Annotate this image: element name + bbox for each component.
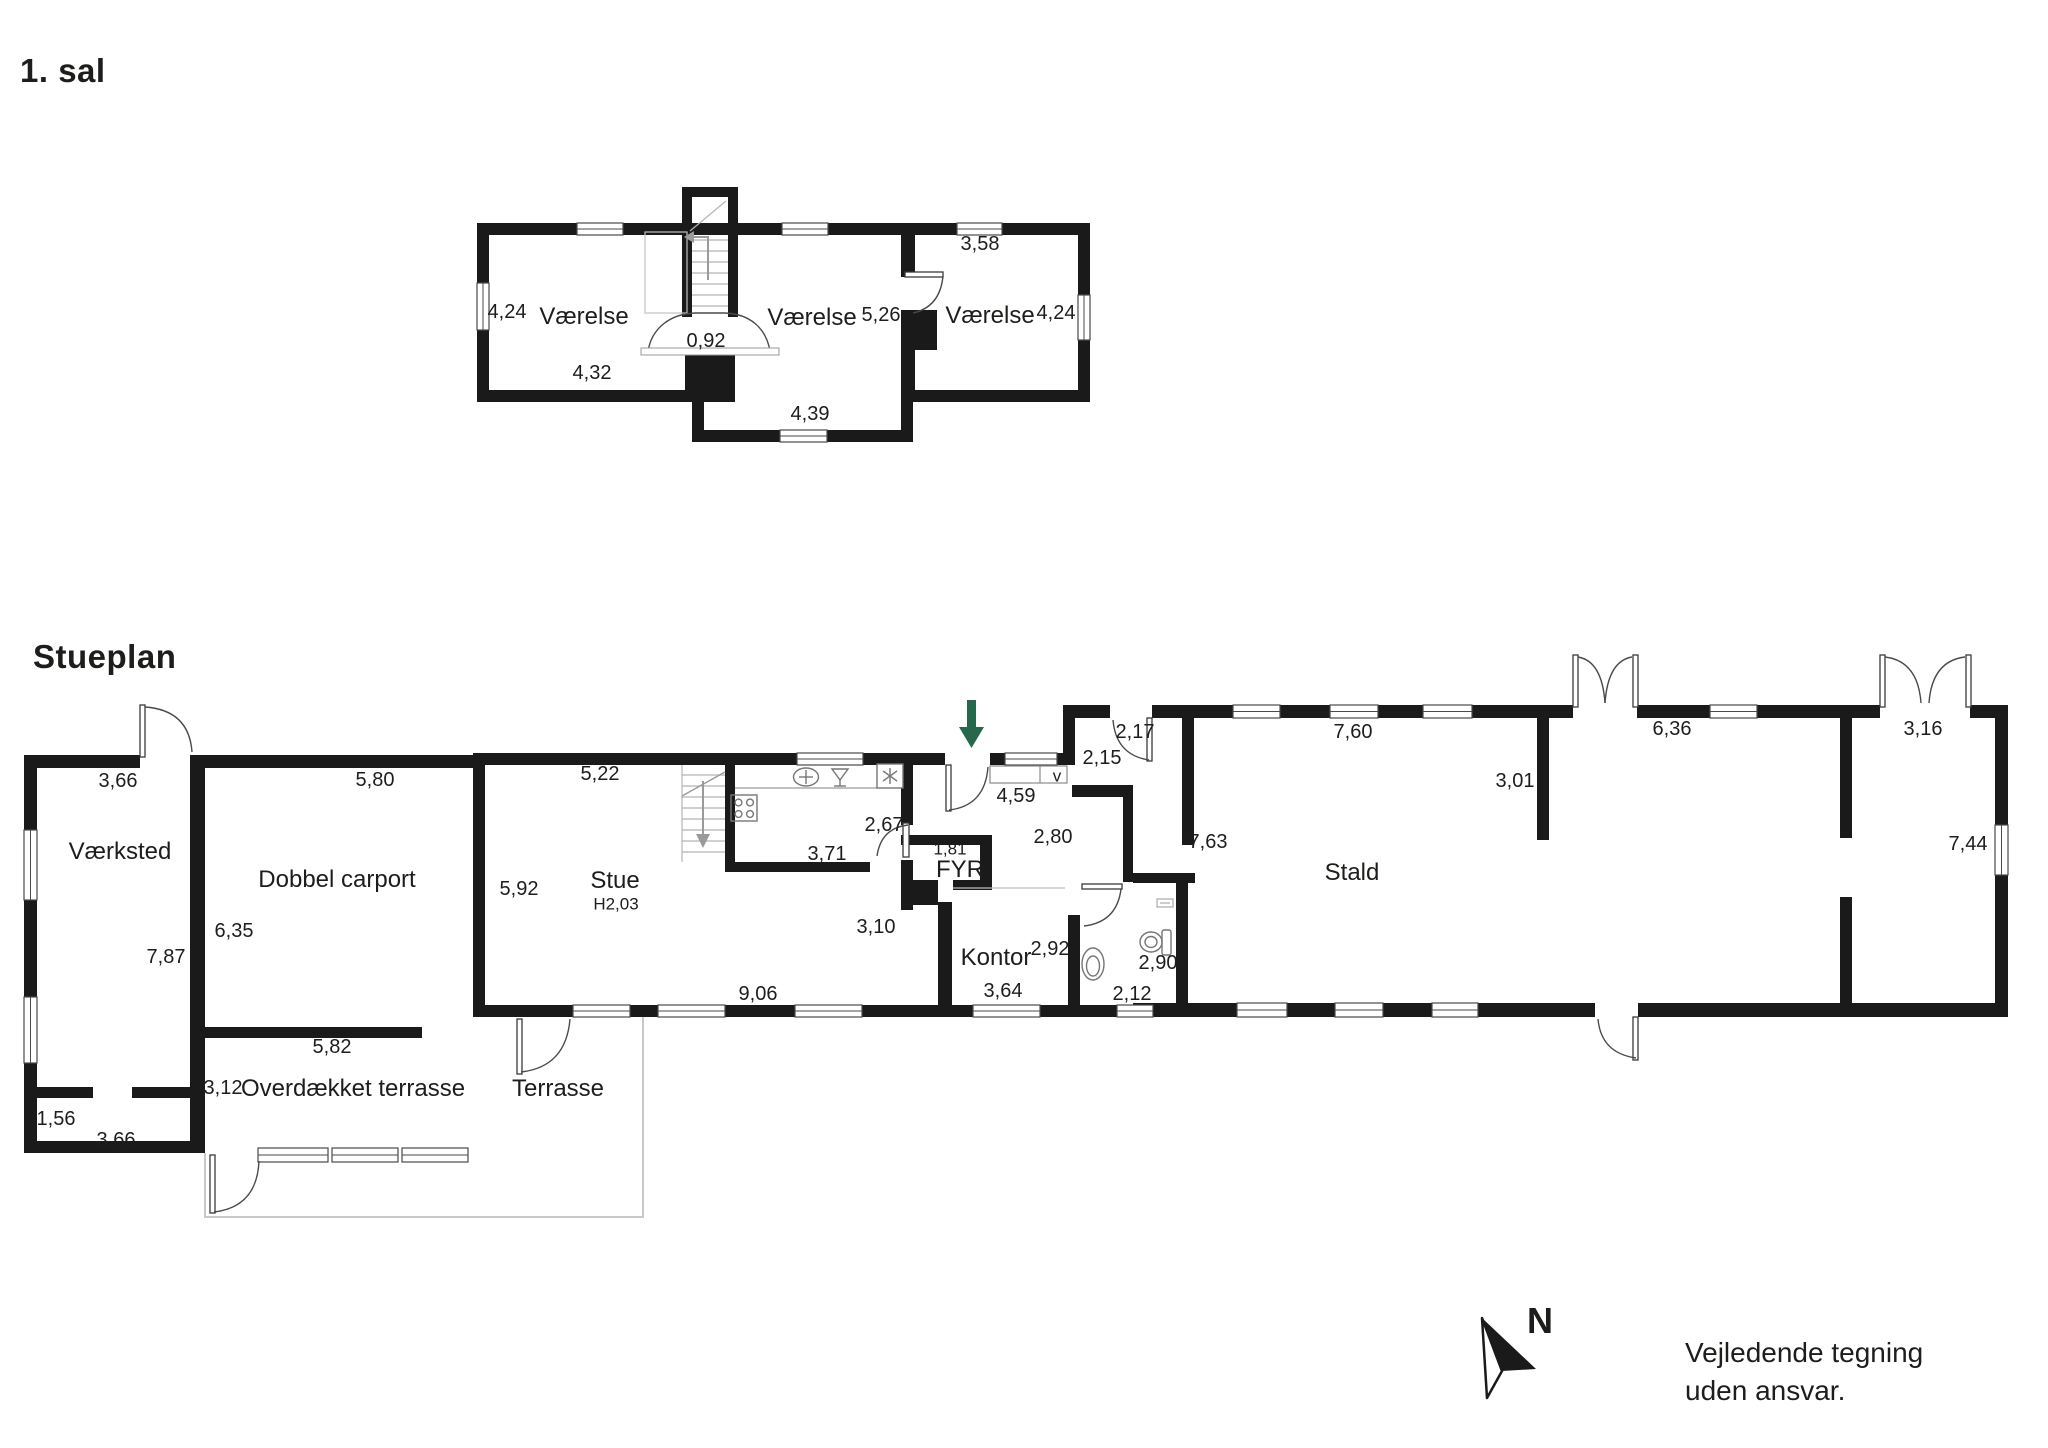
sink-icon (794, 768, 819, 786)
dim-stald-top: 7,60 (1334, 722, 1373, 742)
dim-stald-doors: 3,16 (1904, 719, 1943, 739)
dim-kitchen-depth: 2,67 (865, 815, 904, 835)
vent-icon (1157, 899, 1173, 907)
disclaimer-line-2: uden ansvar. (1685, 1372, 1923, 1410)
dim-terrasse-width: 5,82 (313, 1037, 352, 1057)
room-stald: Stald (1325, 861, 1380, 885)
doors-layer (140, 272, 1971, 1213)
dim-stue-bottom: 9,06 (739, 984, 778, 1004)
dim-bath-width: 2,12 (1113, 984, 1152, 1004)
dim-stald-east: 7,44 (1949, 834, 1988, 854)
room-vaerksted: Værksted (69, 840, 172, 864)
room-terrasse: Terrasse (512, 1077, 604, 1101)
dim-stald-mid: 6,36 (1653, 719, 1692, 739)
room-vaerelse-right: Værelse (945, 304, 1034, 328)
martini-glass-icon (832, 769, 848, 786)
disclaimer-text: Vejledende tegning uden ansvar. (1685, 1334, 1923, 1410)
dim-stair-door: 0,92 (687, 331, 726, 351)
dim-right-top: 3,58 (961, 234, 1000, 254)
dim-stue-ceiling: H2,03 (593, 896, 638, 913)
dim-stue-top: 5,22 (581, 764, 620, 784)
windows-layer (24, 223, 2008, 1162)
north-label: N (1527, 1300, 1553, 1342)
room-fyr: FYR (936, 858, 984, 882)
dim-stald-west: 7,63 (1189, 832, 1228, 852)
dim-kontor-height: 2,92 (1031, 939, 1070, 959)
entrance-arrow-icon (959, 700, 984, 748)
floor1-title: 1. sal (20, 52, 106, 90)
dim-right-height: 4,24 (1037, 303, 1076, 323)
dim-carport-top: 5,80 (356, 770, 395, 790)
disclaimer-line-1: Vejledende tegning (1685, 1334, 1923, 1372)
dim-left-width: 4,32 (573, 363, 612, 383)
dim-entry-a: 2,15 (1083, 748, 1122, 768)
fixture-icons-layer (731, 700, 1536, 1398)
dim-kontor-width: 3,64 (984, 981, 1023, 1001)
ground-floor-title: Stueplan (33, 638, 176, 676)
snowflake-icon (877, 764, 903, 788)
dim-entry-b: 2,17 (1116, 722, 1155, 742)
room-overdaekket-terrasse: Overdækket terrasse (241, 1077, 465, 1101)
room-carport: Dobbel carport (258, 868, 415, 892)
room-vaerelse-middle: Værelse (767, 306, 856, 330)
dim-terrasse-height: 3,12 (204, 1078, 243, 1098)
dim-carport-height: 6,35 (215, 921, 254, 941)
dim-vaerksted-bottom: 3,66 (97, 1130, 136, 1150)
floorplan-canvas (0, 0, 2048, 1448)
dim-hall-width: 4,39 (791, 404, 830, 424)
dim-entry-width: 1,56 (37, 1109, 76, 1129)
wardrobe-mark: v (1053, 768, 1062, 785)
dim-kitchen-width: 3,71 (808, 844, 847, 864)
floorplan-page: 4,24Værelse0,92Værelse5,263,58Værelse4,2… (0, 0, 2048, 1448)
room-vaerelse-left: Værelse (539, 305, 628, 329)
dim-left-height: 4,24 (488, 302, 527, 322)
dim-stue-height: 5,92 (500, 879, 539, 899)
bath-sink-icon (1082, 948, 1104, 980)
dim-hall-depth: 2,80 (1034, 827, 1073, 847)
dim-middle-width: 5,26 (862, 305, 901, 325)
dim-hall-width: 4,59 (997, 786, 1036, 806)
dim-vaerksted-height: 7,87 (147, 947, 186, 967)
room-stue: Stue (590, 869, 639, 893)
dim-fyr-width: 1,81 (933, 841, 966, 858)
dim-stald-wall: 3,01 (1496, 771, 1535, 791)
dim-bath-height: 2,90 (1139, 953, 1178, 973)
dim-stue-opening: 3,10 (857, 917, 896, 937)
dim-vaerksted-top: 3,66 (99, 771, 138, 791)
room-kontor: Kontor (961, 946, 1032, 970)
